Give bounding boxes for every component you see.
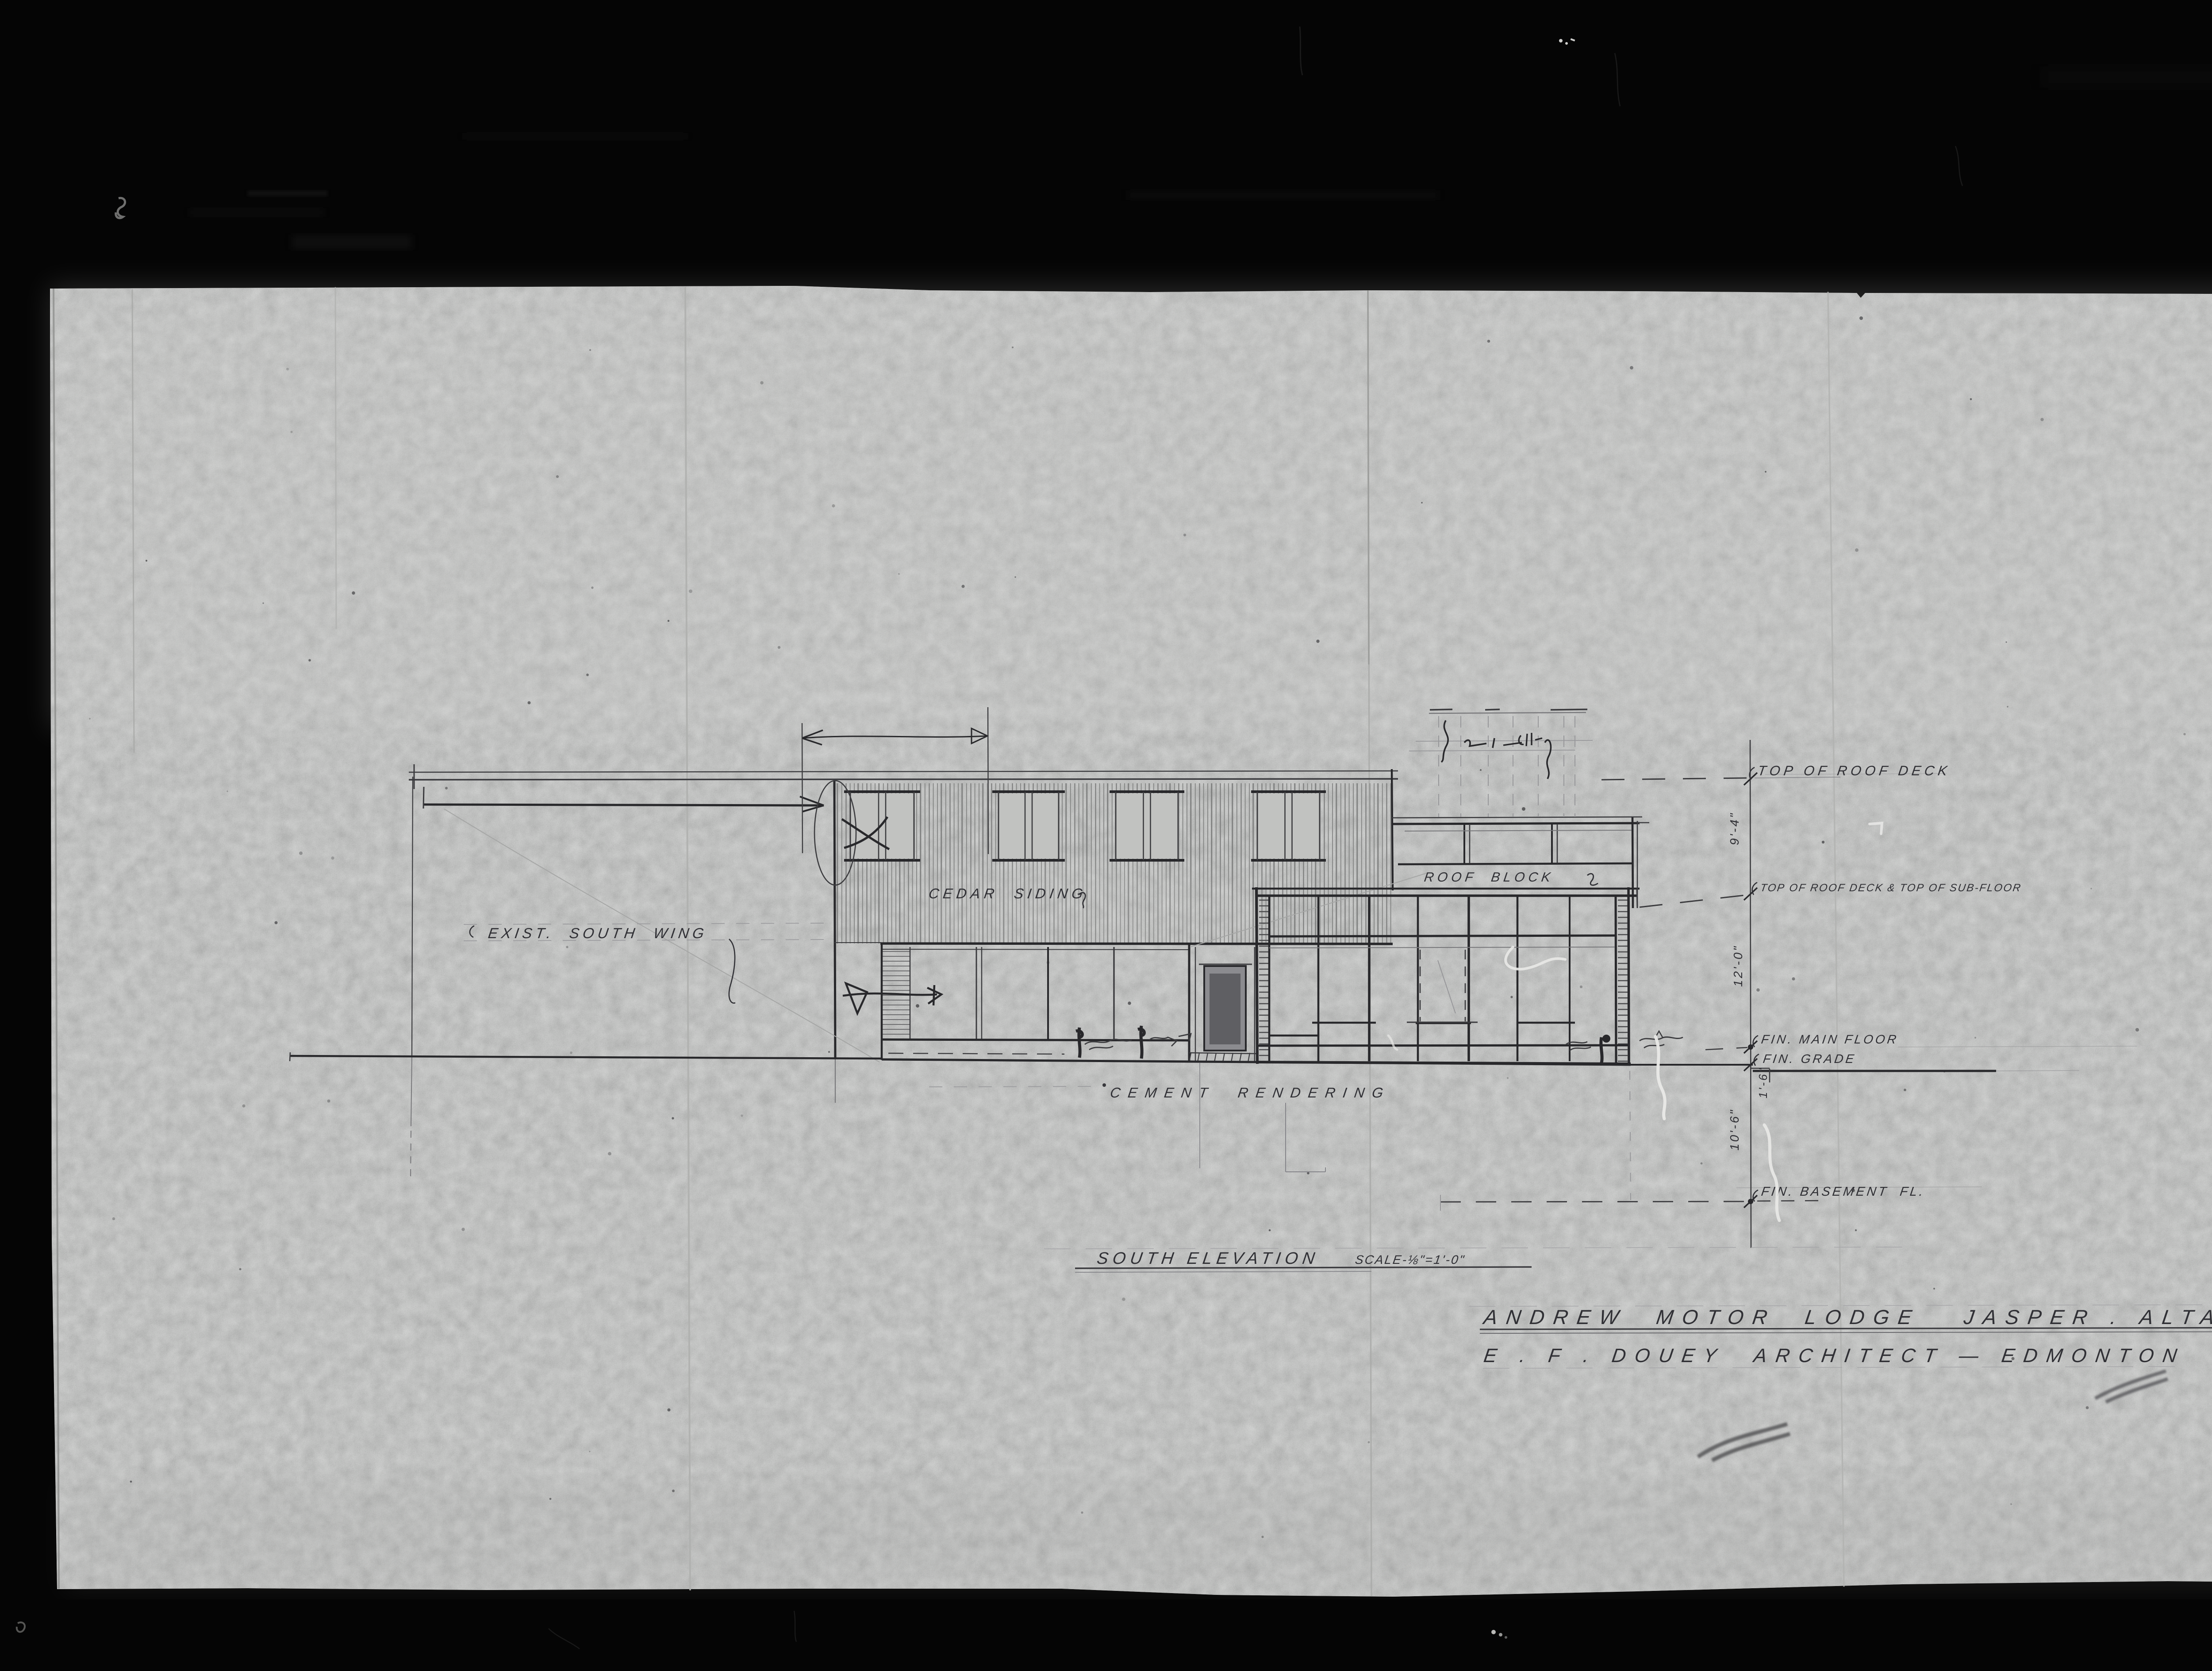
svg-text:E . F . DOUEY ARCHITECT — EDM: E . F . DOUEY ARCHITECT — EDMONTON (1482, 1345, 2187, 1367)
svg-text:ROOF BLOCK: ROOF BLOCK (1423, 870, 1555, 885)
svg-text:ANDREW MOTOR LODGE JASPER: ANDREW MOTOR LODGE JASPER . ALTA . (1481, 1305, 2212, 1328)
svg-text:12'-0": 12'-0" (1731, 945, 1745, 987)
svg-text:10'-6": 10'-6" (1728, 1109, 1741, 1151)
svg-text:1'-6": 1'-6" (1756, 1067, 1770, 1098)
svg-text:TOP OF ROOF DECK & TOP OF SUB-: TOP OF ROOF DECK & TOP OF SUB-FLOOR (1759, 882, 2022, 894)
svg-text:SOUTH ELEVATION: SOUTH ELEVATION (1096, 1249, 1321, 1268)
svg-text:FIN. BASEMENT FL.: FIN. BASEMENT FL. (1760, 1185, 1926, 1199)
svg-text:9'-4": 9'-4" (1728, 812, 1741, 845)
svg-text:SCALE-⅛"=1'-0": SCALE-⅛"=1'-0" (1354, 1253, 1466, 1267)
svg-text:CEDAR SIDING: CEDAR SIDING (928, 886, 1088, 901)
svg-text:FIN. MAIN FLOOR: FIN. MAIN FLOOR (1760, 1032, 1899, 1046)
svg-text:TOP OF ROOF DECK: TOP OF ROOF DECK (1757, 763, 1952, 778)
svg-text:FIN. GRADE: FIN. GRADE (1762, 1052, 1857, 1066)
svg-text:CEMENT RENDERING: CEMENT RENDERING (1109, 1085, 1392, 1101)
svg-text:EXIST. SOUTH WING: EXIST. SOUTH WING (487, 925, 709, 942)
